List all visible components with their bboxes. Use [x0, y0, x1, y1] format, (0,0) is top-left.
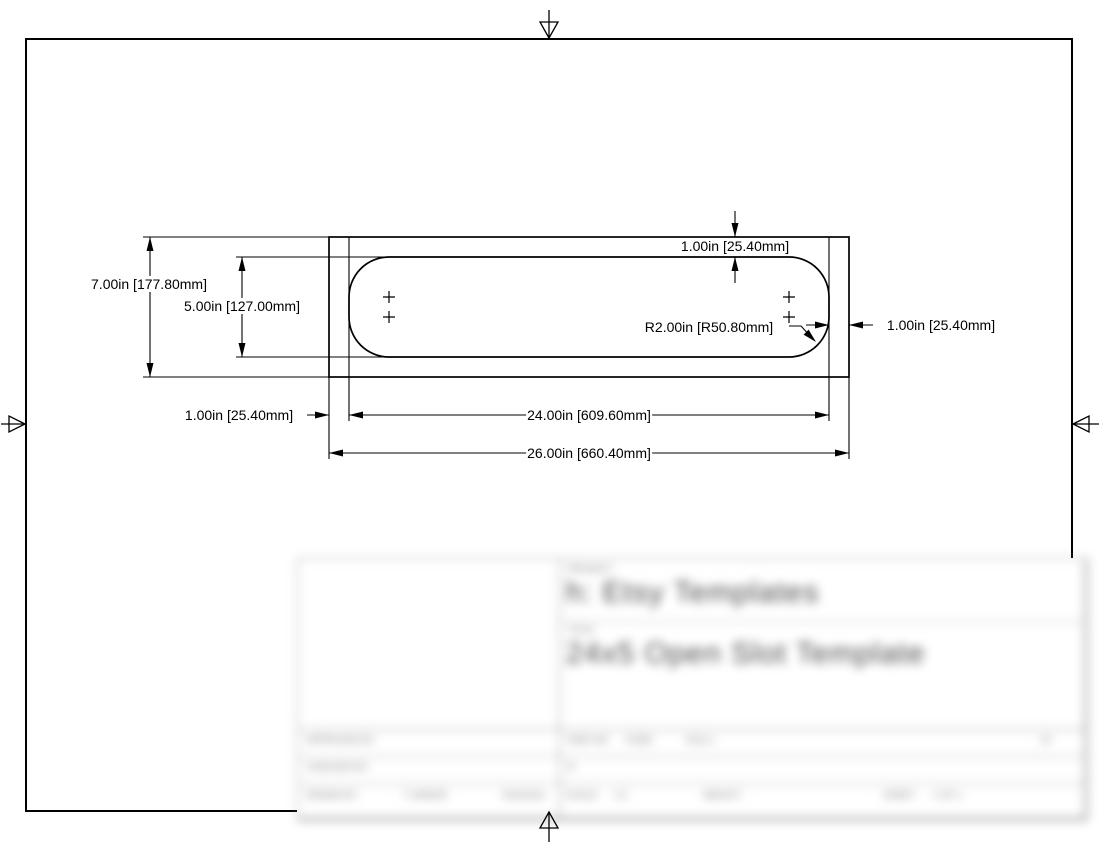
center-mark-left	[1, 416, 25, 432]
center-mark-bottom	[540, 812, 558, 842]
center-mark-top	[540, 10, 558, 38]
center-mark-right	[1073, 416, 1099, 432]
drawing-sheet: 7.00in [177.80mm] 5.00in [127.00mm] 1.00…	[0, 0, 1100, 850]
centering-marks	[0, 0, 1100, 850]
